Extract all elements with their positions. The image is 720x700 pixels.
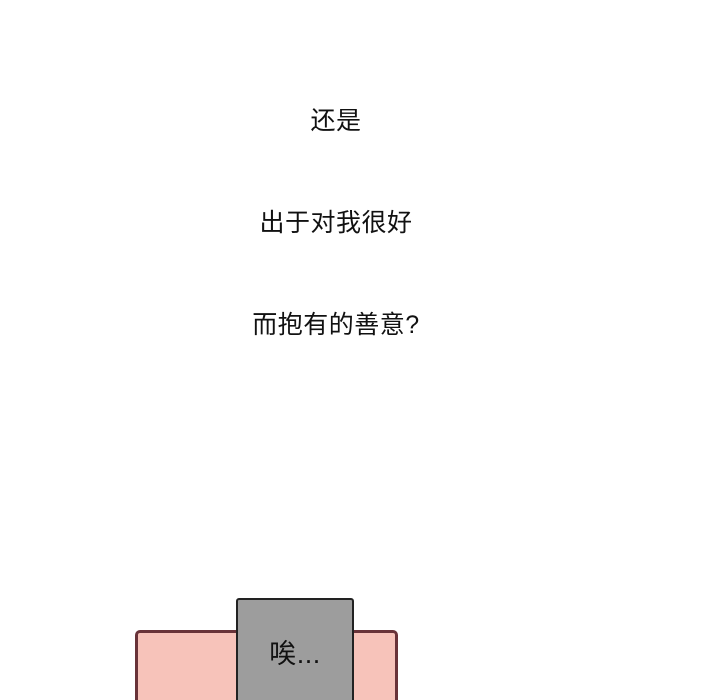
narration-text-block: 还是 出于对我很好 而抱有的善意? [0, 36, 696, 410]
speech-text: 唉... [238, 639, 352, 670]
speech-box: 唉... [236, 598, 354, 700]
narration-line-2: 出于对我很好 [0, 206, 696, 240]
narration-line-1: 还是 [0, 104, 696, 138]
narration-line-3: 而抱有的善意? [0, 308, 696, 342]
comic-page: 还是 出于对我很好 而抱有的善意? 唉... [0, 0, 720, 700]
